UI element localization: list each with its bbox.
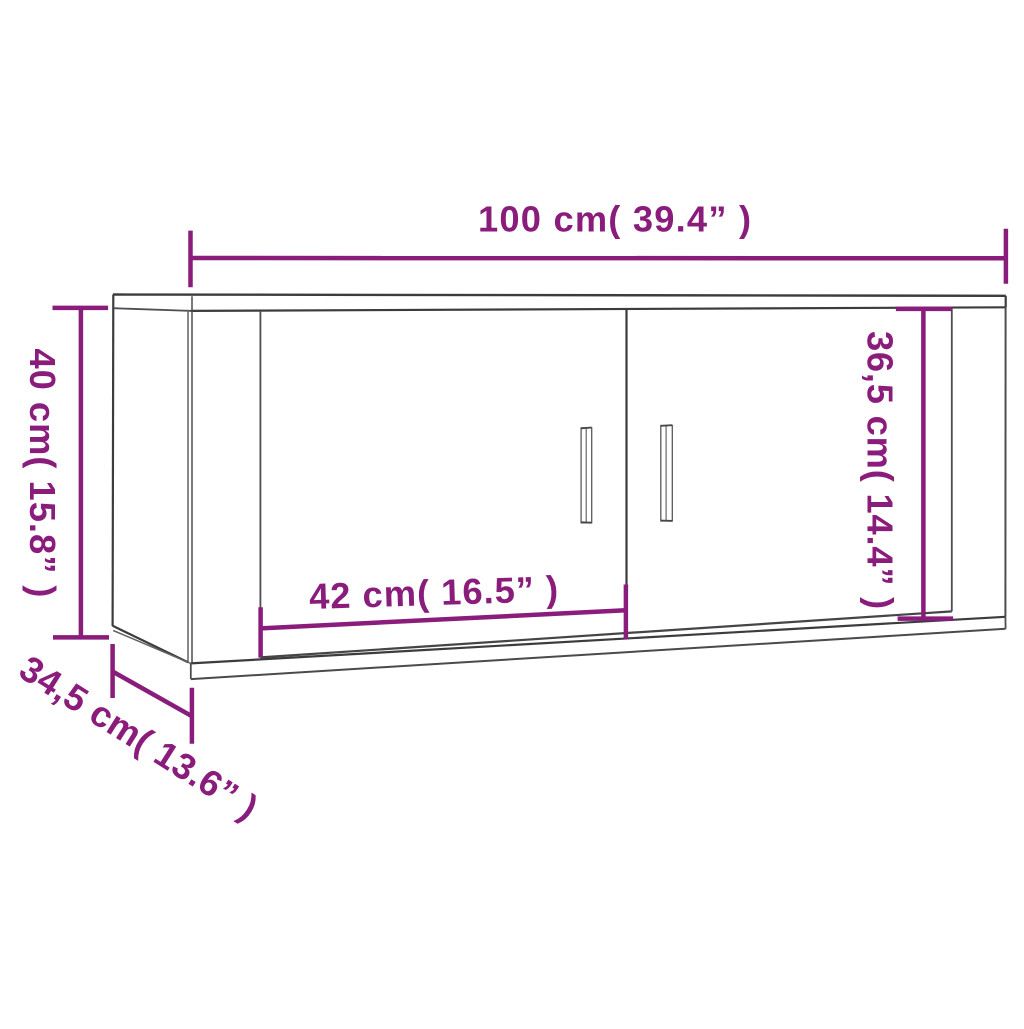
svg-text:36,5 cm( 14.4” ): 36,5 cm( 14.4” ) [860, 331, 901, 610]
svg-text:42 cm( 16.5” ): 42 cm( 16.5” ) [308, 568, 559, 617]
svg-text:100 cm( 39.4” ): 100 cm( 39.4” ) [478, 199, 752, 240]
svg-text:40 cm( 15.8” ): 40 cm( 15.8” ) [22, 348, 63, 598]
